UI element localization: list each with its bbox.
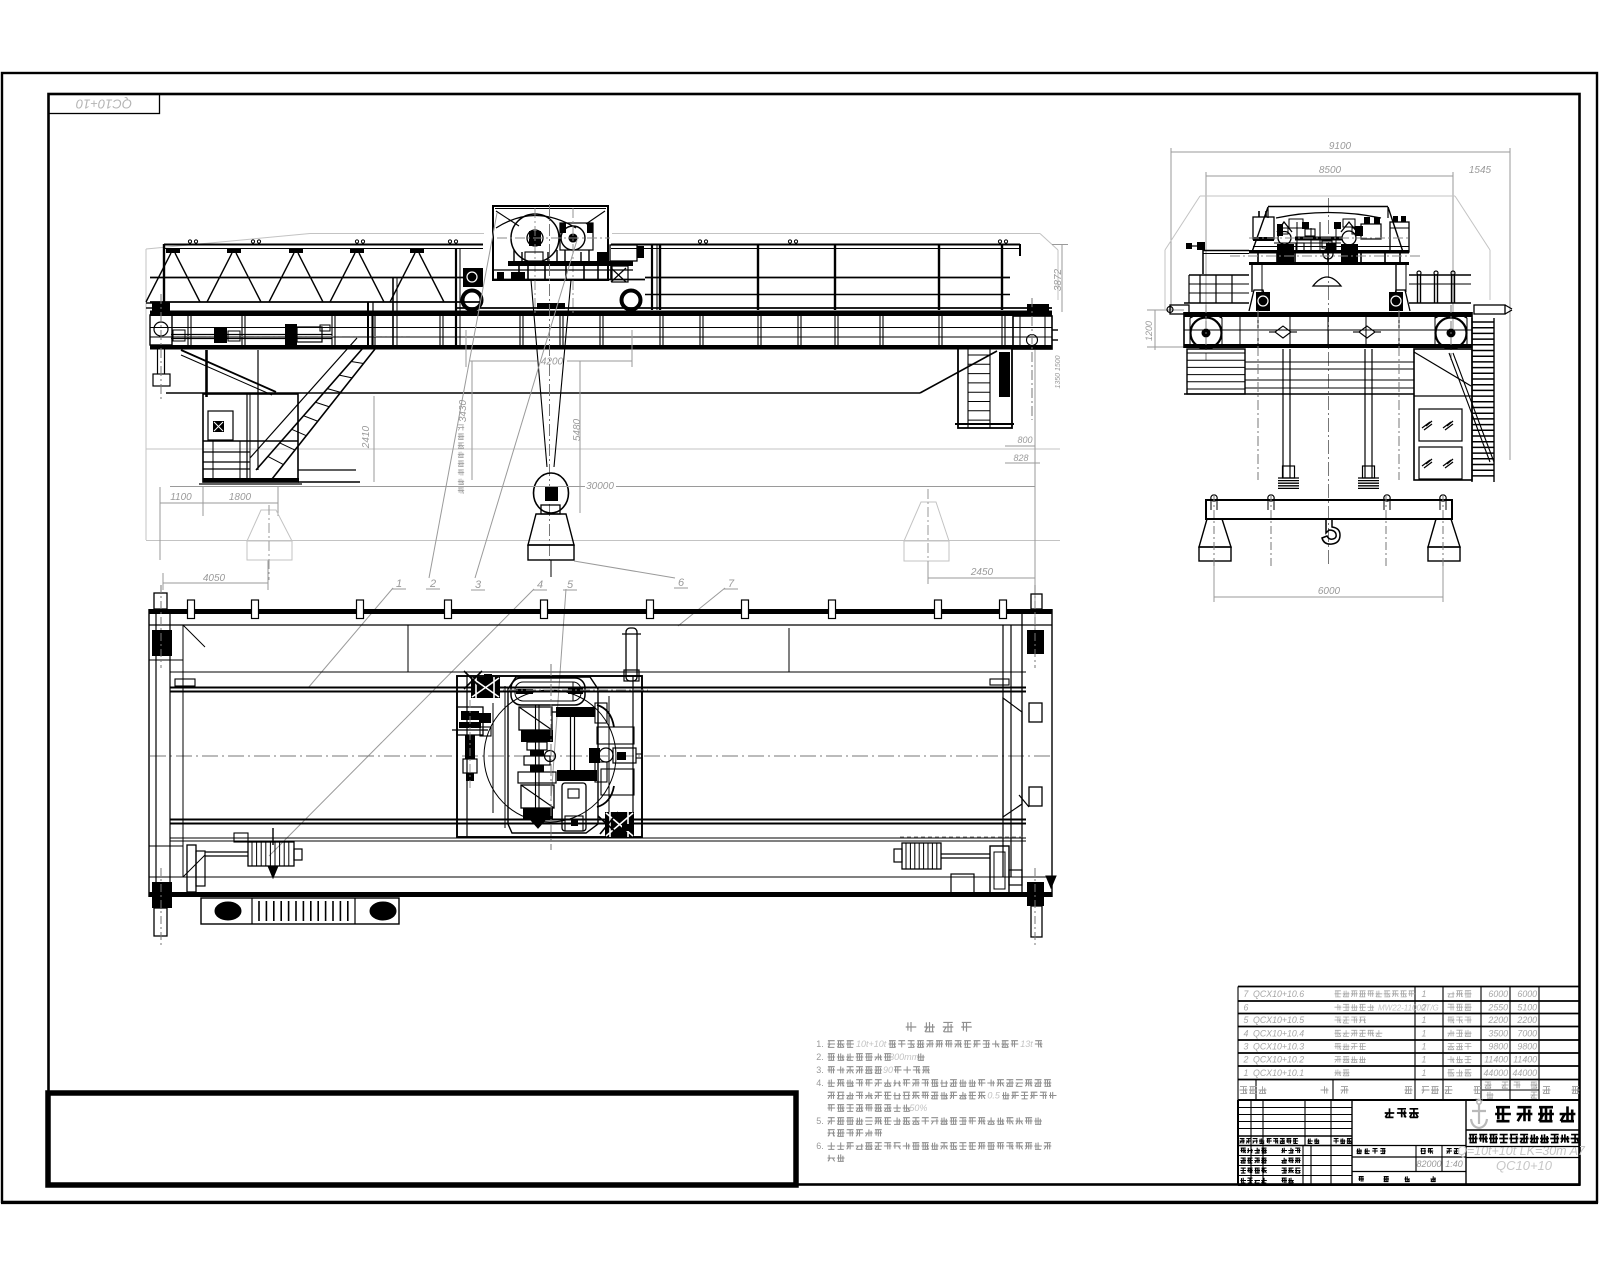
svg-text:11400: 11400 (1513, 1055, 1537, 1065)
svg-text:3: 3 (475, 579, 482, 591)
svg-text:4200: 4200 (541, 357, 564, 368)
svg-text:5480: 5480 (572, 418, 583, 441)
svg-text:2: 2 (429, 578, 436, 590)
svg-text:QCX10+10.5: QCX10+10.5 (1253, 1015, 1304, 1025)
svg-text:828: 828 (1013, 453, 1028, 463)
svg-text:44000: 44000 (1513, 1068, 1538, 1078)
svg-text:QCX10+10.4: QCX10+10.4 (1253, 1028, 1304, 1038)
svg-text:9100: 9100 (1329, 141, 1352, 152)
svg-text:2200: 2200 (1487, 1015, 1508, 1025)
svg-text:3.: 3. (816, 1065, 824, 1075)
svg-text:1800: 1800 (229, 492, 252, 503)
svg-text:1.: 1. (816, 1039, 824, 1049)
svg-text:2550: 2550 (1487, 1002, 1508, 1012)
svg-text:1: 1 (1422, 1055, 1427, 1065)
svg-text:1: 1 (1422, 1015, 1427, 1025)
svg-text:2.: 2. (816, 1052, 824, 1062)
svg-text:6000: 6000 (1488, 989, 1508, 999)
svg-text:300mm: 300mm (889, 1052, 920, 1062)
svg-text:3: 3 (1244, 1042, 1249, 1052)
svg-text:2: 2 (1243, 1055, 1249, 1065)
svg-text:9800: 9800 (1517, 1042, 1537, 1052)
svg-text:QC10+10: QC10+10 (1496, 1158, 1553, 1173)
svg-text:QCX10+10.2: QCX10+10.2 (1253, 1055, 1304, 1065)
svg-text:82000: 82000 (1416, 1159, 1441, 1169)
svg-text:1: 1 (1422, 989, 1427, 999)
svg-text:1: 1 (1422, 1042, 1427, 1052)
svg-text:QCX10+10.1: QCX10+10.1 (1253, 1068, 1304, 1078)
svg-text:2200: 2200 (1516, 1015, 1537, 1025)
svg-text:9800: 9800 (1488, 1042, 1508, 1052)
svg-text:4.: 4. (816, 1078, 824, 1088)
svg-text:4: 4 (1244, 1028, 1249, 1038)
svg-text:TBQ: TBQ (1475, 1097, 1483, 1102)
svg-text:44000: 44000 (1484, 1068, 1509, 1078)
svg-text:MW22-11000T/G: MW22-11000T/G (1378, 1003, 1439, 1012)
svg-text:2: 2 (1421, 1002, 1427, 1012)
svg-text:7000: 7000 (1517, 1028, 1537, 1038)
svg-text:90: 90 (883, 1065, 893, 1075)
svg-text:2450: 2450 (970, 567, 994, 578)
svg-text:10t+10t: 10t+10t (856, 1039, 887, 1049)
svg-text:7: 7 (728, 578, 735, 590)
svg-text:3500: 3500 (1488, 1028, 1508, 1038)
svg-text:50%: 50% (909, 1103, 927, 1113)
svg-text:0.5: 0.5 (987, 1091, 1001, 1101)
svg-text:5: 5 (1244, 1015, 1249, 1025)
svg-text:3872: 3872 (1053, 268, 1064, 291)
svg-text:8500: 8500 (1319, 165, 1342, 176)
svg-text:6000: 6000 (1318, 586, 1341, 597)
svg-text:13t: 13t (1020, 1039, 1033, 1049)
svg-text:2410: 2410 (361, 425, 372, 449)
svg-text:800: 800 (1017, 435, 1032, 445)
svg-text:5100: 5100 (1517, 1002, 1537, 1012)
svg-text:5.: 5. (816, 1116, 824, 1126)
svg-text:1200: 1200 (1144, 321, 1154, 341)
svg-text:6000: 6000 (1517, 989, 1537, 999)
svg-text:6: 6 (1244, 1002, 1249, 1012)
svg-text:6.: 6. (816, 1141, 824, 1151)
svg-text:6: 6 (678, 577, 685, 589)
svg-text:QCX10+10.6: QCX10+10.6 (1253, 989, 1304, 999)
svg-text:5: 5 (567, 579, 574, 591)
svg-text:QC10+10: QC10+10 (75, 97, 132, 112)
svg-text:1: 1 (1422, 1068, 1427, 1078)
svg-text:1350 1500: 1350 1500 (1055, 355, 1062, 388)
svg-text:1100: 1100 (170, 492, 192, 503)
svg-text:4050: 4050 (203, 573, 226, 584)
svg-text:4: 4 (537, 579, 543, 591)
svg-text:1:40: 1:40 (1445, 1159, 1463, 1169)
svg-text:QCX10+10.3: QCX10+10.3 (1253, 1042, 1304, 1052)
svg-text:1: 1 (1244, 1068, 1249, 1078)
svg-text:11400: 11400 (1484, 1055, 1508, 1065)
svg-text:1: 1 (1422, 1028, 1427, 1038)
svg-text:1545: 1545 (1469, 165, 1492, 176)
svg-text:1: 1 (396, 578, 402, 590)
svg-text:30000: 30000 (586, 481, 614, 492)
